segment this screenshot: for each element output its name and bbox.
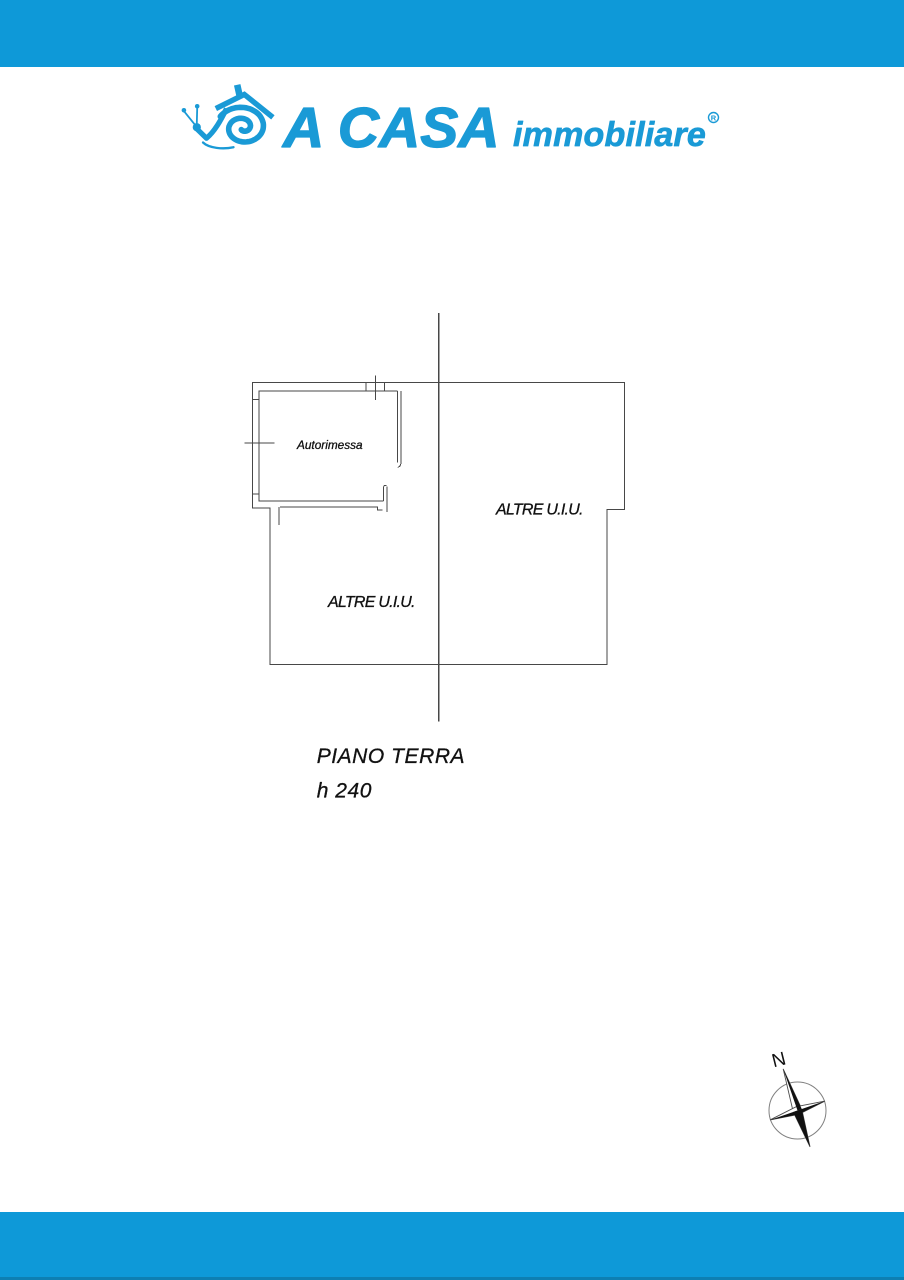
svg-text:Autorimessa: Autorimessa: [296, 438, 363, 452]
svg-text:ALTRE U.I.U.: ALTRE U.I.U.: [495, 502, 583, 519]
svg-text:PIANO TERRA: PIANO TERRA: [317, 745, 465, 768]
svg-text:N: N: [770, 1048, 788, 1072]
svg-text:immobiliare: immobiliare: [513, 116, 706, 154]
svg-text:h 240: h 240: [317, 779, 372, 802]
svg-text:R: R: [711, 114, 717, 123]
svg-text:A CASA: A CASA: [281, 96, 499, 160]
svg-text:ALTRE U.I.U.: ALTRE U.I.U.: [327, 594, 415, 611]
